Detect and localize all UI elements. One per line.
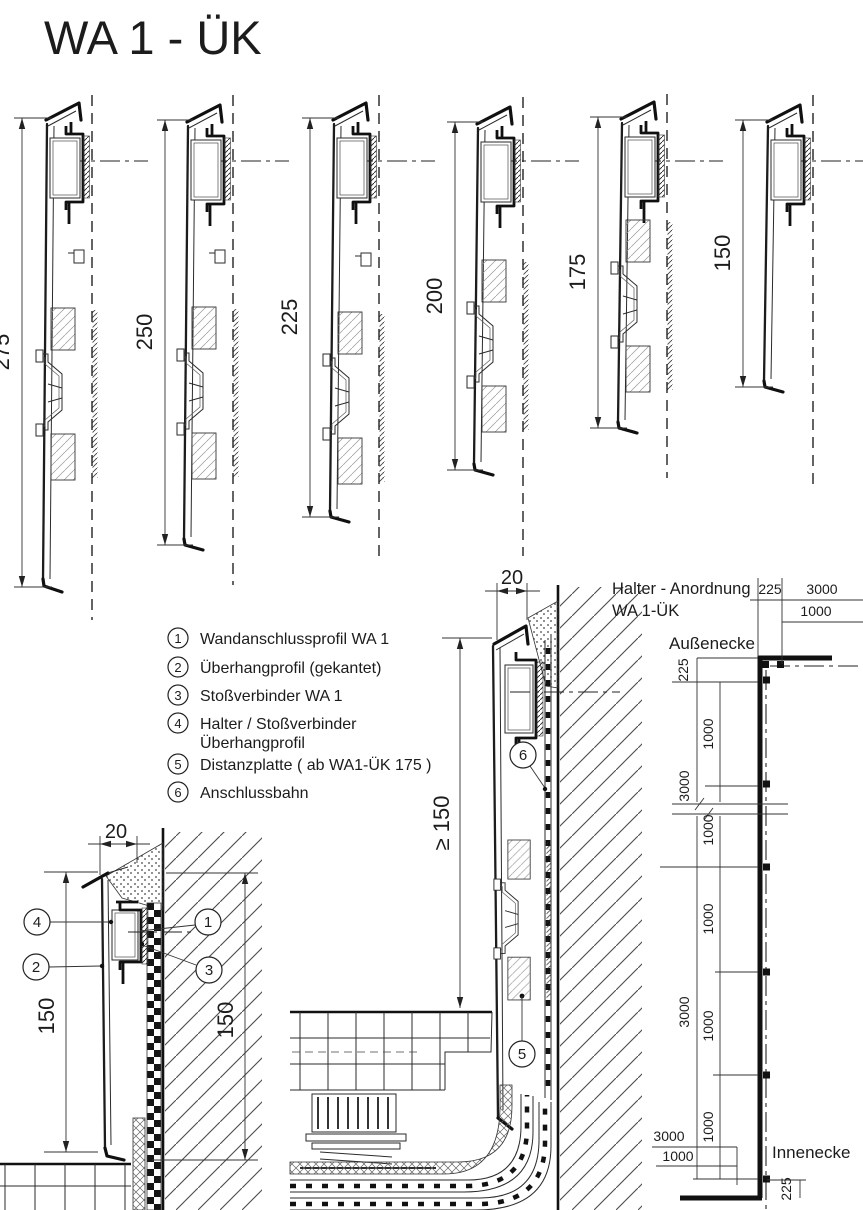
profile-225: 225 xyxy=(277,95,435,556)
callout-6-num: 6 xyxy=(519,747,527,764)
legend-num-5: 5 xyxy=(174,757,181,772)
legend-num-6: 6 xyxy=(174,785,181,800)
profile-200-height-label: 200 xyxy=(422,278,447,315)
legend-label-1: Wandanschlussprofil WA 1 xyxy=(200,631,389,648)
legend-label-5: Distanzplatte ( ab WA1-ÜK 175 ) xyxy=(200,756,432,774)
page-title: WA 1 - ÜK xyxy=(44,11,262,64)
detail-section-150: 20 150 150 4 2 1 3 xyxy=(0,821,262,1210)
profile-150-height-label: 150 xyxy=(710,235,735,272)
dim-bottom-225: 225 xyxy=(778,1177,794,1201)
wall-hatch-2 xyxy=(560,587,642,1210)
profile-225-height-label: 225 xyxy=(277,299,302,336)
legend: 1 Wandanschlussprofil WA 1 2 Überhangpro… xyxy=(168,628,432,802)
dim-left-225: 225 xyxy=(675,658,691,682)
profile-275: 275 xyxy=(0,95,148,620)
callout-4-num: 4 xyxy=(33,914,41,931)
legend-num-1: 1 xyxy=(174,631,181,646)
dim-top-3000: 3000 xyxy=(806,581,837,597)
halter-title-2: WA 1-ÜK xyxy=(612,602,679,620)
drain-strip xyxy=(133,1118,145,1210)
halter-anordnung: Halter - Anordnung WA 1-ÜK Außenecke Inn… xyxy=(612,578,863,1210)
detail-left-dim-150-left: 150 xyxy=(34,998,59,1035)
dim-top-1000: 1000 xyxy=(800,603,831,619)
profile-175-height-label: 175 xyxy=(565,254,590,291)
profile-200: 200 xyxy=(422,97,579,556)
legend-label-2: Überhangprofil (gekantet) xyxy=(200,659,381,677)
callout-2-num: 2 xyxy=(32,959,40,976)
pedestal xyxy=(300,1094,436,1168)
legend-label-4: Halter / Stoßverbinder xyxy=(200,716,357,733)
dim-v-3000b: 3000 xyxy=(676,996,692,1027)
dim-v-1000d: 1000 xyxy=(700,1010,716,1041)
legend-num-3: 3 xyxy=(174,688,181,703)
dim-v-1000c: 1000 xyxy=(700,903,716,934)
halter-title-1: Halter - Anordnung xyxy=(612,580,751,598)
detail-left-dim-150-right: 150 xyxy=(213,1002,238,1039)
dim-bottom-1000: 1000 xyxy=(662,1148,693,1164)
detail-mid-dim-20: 20 xyxy=(501,567,523,589)
legend-label-6: Anschlussbahn xyxy=(200,785,309,802)
profile-150: 150 xyxy=(710,95,863,490)
outer-corner-label: Außenecke xyxy=(669,634,755,653)
legend-label-4b: Überhangprofil xyxy=(200,734,305,752)
profile-250: 250 xyxy=(132,95,289,585)
sealant-stipple xyxy=(106,843,163,910)
legend-num-2: 2 xyxy=(174,660,181,675)
callout-1-num: 1 xyxy=(204,914,212,931)
inner-corner-label: Innenecke xyxy=(772,1143,850,1162)
detail-mid-dim-ge150: ≥ 150 xyxy=(429,796,454,851)
profile-275-height-label: 275 xyxy=(0,334,14,371)
dim-v-1000e: 1000 xyxy=(700,1111,716,1142)
legend-num-4: 4 xyxy=(174,716,181,731)
callout-3-num: 3 xyxy=(205,962,213,979)
detail-left-dim-20: 20 xyxy=(105,821,127,843)
dim-v-1000b: 1000 xyxy=(700,814,716,845)
callout-5-num: 5 xyxy=(518,1046,526,1063)
profile-175: 175 xyxy=(565,94,723,478)
drawing-sheet: WA 1 - ÜK 275 250 xyxy=(0,0,863,1210)
dim-v-3000a: 3000 xyxy=(676,770,692,801)
dim-v-1000a: 1000 xyxy=(700,718,716,749)
profile-250-height-label: 250 xyxy=(132,314,157,351)
dim-bottom-3000: 3000 xyxy=(653,1128,684,1144)
dim-top-225: 225 xyxy=(758,581,782,597)
legend-label-3: Stoßverbinder WA 1 xyxy=(200,688,343,705)
